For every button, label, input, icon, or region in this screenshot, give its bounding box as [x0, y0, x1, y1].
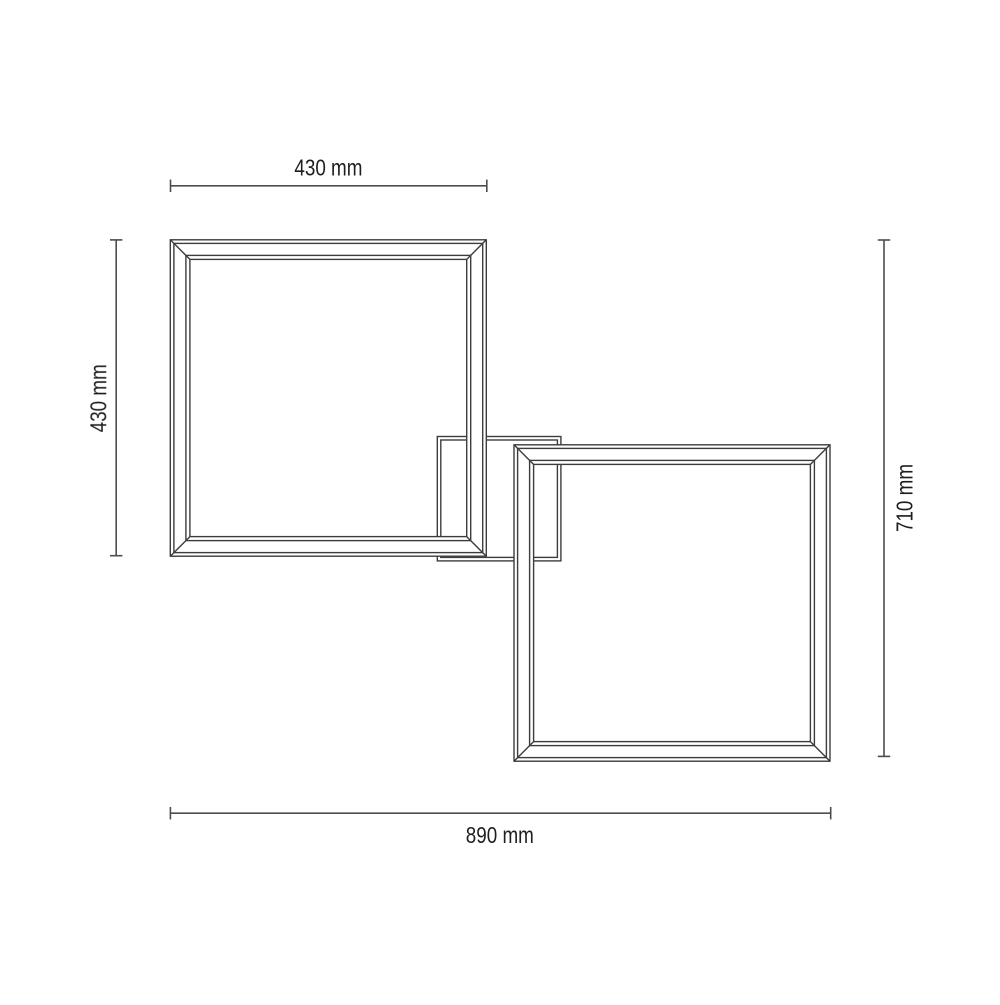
svg-text:710 mm: 710 mm — [893, 464, 918, 532]
svg-text:430 mm: 430 mm — [294, 156, 362, 181]
svg-text:430 mm: 430 mm — [87, 364, 112, 432]
svg-text:890 mm: 890 mm — [466, 823, 534, 848]
